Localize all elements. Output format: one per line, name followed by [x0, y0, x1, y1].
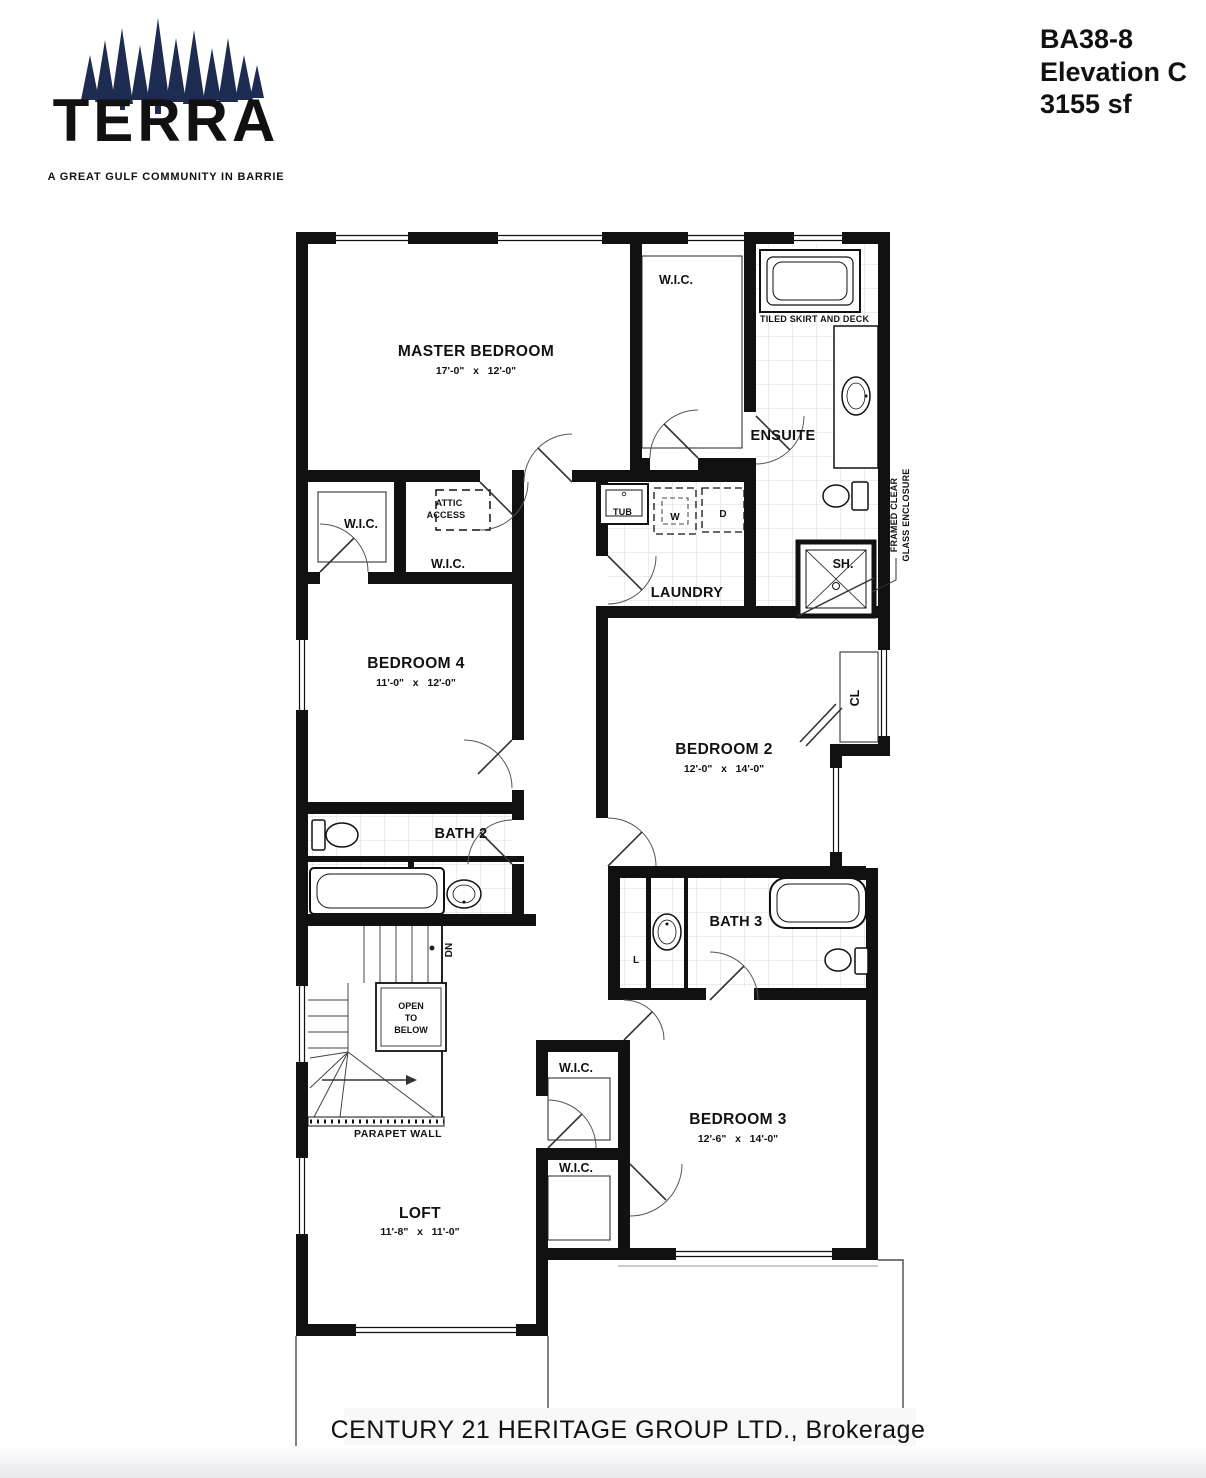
cl-label: CL: [848, 689, 862, 706]
newel-post: [430, 946, 435, 951]
dryer-label: D: [719, 509, 726, 520]
door-wic-master: [650, 410, 698, 458]
logo-wordmark: TERRA: [53, 87, 280, 154]
door-wic2: [630, 1164, 682, 1216]
svg-text:ATTIC: ATTIC: [436, 498, 463, 508]
wic2-shelf: [548, 1176, 610, 1240]
down-arrow: [322, 1075, 417, 1085]
window: [336, 236, 408, 241]
tiled-skirt-label: TILED SKIRT AND DECK: [760, 314, 869, 324]
svg-text:11'-8" x 11'-0": 11'-8" x 11'-0": [380, 1226, 459, 1238]
wic-bed4-label: W.I.C.: [344, 517, 378, 531]
svg-text:TO: TO: [405, 1013, 417, 1023]
attic-access: ATTIC ACCESS: [427, 490, 490, 530]
terra-logo: TERRA A GREAT GULF COMMUNITY IN BARRIE: [48, 18, 285, 183]
laundry-tub: TUB: [600, 484, 648, 524]
vanity-sink-ensuite: [834, 326, 878, 468]
master-bedroom-label: MASTER BEDROOM 17'-0" x 12'-0": [398, 343, 554, 377]
plan-area: 3155 sf: [1040, 89, 1133, 119]
wic2-label: W.I.C.: [559, 1161, 593, 1175]
door-bed3: [624, 1000, 664, 1040]
window: [356, 1328, 516, 1333]
door-cl-bifold: [800, 704, 842, 746]
svg-text:12'-0" x 14'-0": 12'-0" x 14'-0": [684, 763, 764, 775]
laundry-tub-label: TUB: [613, 507, 632, 517]
bath3-label: BATH 3: [709, 914, 762, 930]
sink-bath2: [447, 880, 481, 908]
svg-text:LOFT: LOFT: [399, 1205, 441, 1222]
stairs-down-label: DN: [444, 943, 455, 957]
window: [300, 986, 305, 1062]
window: [676, 1252, 832, 1257]
bedroom3-label: BEDROOM 3 12'-6" x 14'-0": [689, 1111, 786, 1145]
plan-model: BA38-8: [1040, 24, 1133, 54]
plan-elevation: Elevation C: [1040, 57, 1187, 87]
plan-info-block: BA38-8 Elevation C 3155 sf: [1040, 24, 1187, 119]
svg-text:GLASS ENCLOSURE: GLASS ENCLOSURE: [901, 468, 911, 561]
bedroom4-label: BEDROOM 4 11'-0" x 12'-0": [367, 655, 464, 689]
logo-tagline: A GREAT GULF COMMUNITY IN BARRIE: [48, 171, 285, 183]
staircase: DN OPEN TO BELOW PARAPET WALL: [308, 926, 455, 1140]
wic-attic-label: W.I.C.: [431, 557, 465, 571]
door-master: [524, 434, 572, 482]
svg-text:BEDROOM 2: BEDROOM 2: [675, 741, 772, 758]
open-to-below: OPEN TO BELOW: [376, 983, 446, 1051]
window: [688, 236, 744, 241]
svg-text:BEDROOM 3: BEDROOM 3: [689, 1111, 786, 1128]
wic-master-label: W.I.C.: [659, 273, 693, 287]
svg-text:ACCESS: ACCESS: [427, 510, 466, 520]
svg-text:BEDROOM 4: BEDROOM 4: [367, 655, 464, 672]
window: [882, 650, 887, 736]
shower-label: SH.: [833, 557, 854, 571]
door-bed2: [608, 818, 656, 866]
ensuite-label: ENSUITE: [751, 428, 816, 444]
sink-bath3: [653, 914, 681, 950]
page-bottom-fade: [0, 1446, 1206, 1478]
washer-label: W: [670, 512, 680, 523]
bath2-label: BATH 2: [434, 826, 487, 842]
loft-label: LOFT 11'-8" x 11'-0": [380, 1205, 459, 1238]
door-wic1: [548, 1100, 596, 1148]
wic1-shelf: [548, 1078, 610, 1140]
door-bed4: [464, 740, 512, 788]
svg-text:12'-6" x 14'-0": 12'-6" x 14'-0": [698, 1133, 778, 1145]
window: [834, 768, 839, 852]
wic1-label: W.I.C.: [559, 1061, 593, 1075]
window: [300, 1158, 305, 1234]
bathtub-ensuite: [760, 250, 860, 312]
window: [498, 236, 602, 241]
bathtub-bath2: [310, 868, 444, 914]
brokerage-watermark: CENTURY 21 HERITAGE GROUP LTD., Brokerag…: [331, 1416, 926, 1444]
window: [300, 640, 305, 710]
laundry-label: LAUNDRY: [651, 585, 723, 601]
parapet-wall-label: PARAPET WALL: [354, 1128, 442, 1140]
svg-text:OPEN: OPEN: [398, 1001, 424, 1011]
bedroom2-label: BEDROOM 2 12'-0" x 14'-0": [675, 741, 772, 775]
svg-text:FRAMED CLEAR: FRAMED CLEAR: [889, 478, 899, 553]
linen-label: L: [633, 955, 639, 966]
svg-text:BELOW: BELOW: [394, 1025, 428, 1035]
floor-plan-sheet: TERRA A GREAT GULF COMMUNITY IN BARRIE B…: [0, 0, 1206, 1478]
toilet-bath2: [312, 820, 358, 850]
bathtub-bath3: [770, 878, 866, 928]
shower-stall: SH.: [798, 542, 874, 616]
svg-text:MASTER BEDROOM: MASTER BEDROOM: [398, 343, 554, 360]
door-wic-bed4: [320, 524, 368, 572]
svg-text:11'-0" x 12'-0": 11'-0" x 12'-0": [376, 677, 456, 689]
svg-text:17'-0" x 12'-0": 17'-0" x 12'-0": [436, 365, 516, 377]
window: [794, 236, 842, 241]
parapet-wall: PARAPET WALL: [308, 1117, 444, 1140]
